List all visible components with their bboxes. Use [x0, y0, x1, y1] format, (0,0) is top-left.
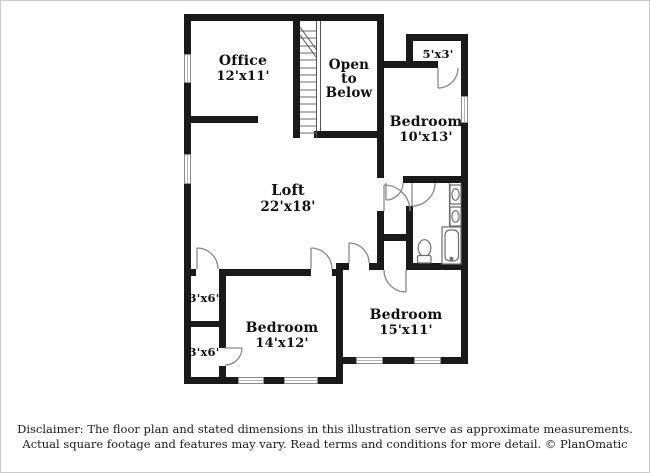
wall-bath-top	[403, 176, 468, 183]
office-dims: 12'x11'	[216, 69, 269, 84]
window-bed14-bottom-1	[239, 378, 264, 384]
closet-5x3-dims: 5'x3'	[423, 47, 454, 61]
wall-closet5x3-top	[406, 34, 468, 41]
loft-label: Loft	[271, 182, 305, 199]
stair-edge-lines	[317, 21, 321, 138]
door-bedroom14x12	[311, 248, 332, 269]
wall-openbelow-bottom	[314, 131, 384, 138]
window-bed15-bottom-2	[415, 358, 441, 364]
staircase	[300, 21, 321, 138]
door-bed15-closet	[384, 270, 406, 292]
wall-loft-bottom-e	[369, 263, 384, 270]
door-closet3x6-upper	[197, 248, 218, 269]
bedroom-14x12-dims: 14'x12'	[255, 336, 308, 351]
open-below-line3: Below	[326, 85, 373, 101]
door-bathroom	[412, 183, 435, 206]
bedroom-14x12-label: Bedroom	[246, 320, 319, 336]
bedroom-15x11-label: Bedroom	[370, 307, 443, 323]
window-bed14-bottom-2	[285, 378, 318, 384]
bedroom-10x13-label: Bedroom	[390, 114, 463, 130]
door-bedroom15x11	[349, 243, 369, 263]
office-label: Office	[219, 53, 267, 69]
bedroom-15x11-dims: 15'x11'	[379, 323, 432, 338]
wall-step	[336, 263, 343, 384]
window-bed15-bottom-1	[357, 358, 383, 364]
disclaimer: Disclaimer: The floor plan and stated di…	[1, 422, 649, 451]
wall-hall-cross	[377, 234, 413, 241]
door-closet5x3	[438, 68, 458, 88]
disclaimer-line1: Disclaimer: The floor plan and stated di…	[1, 422, 649, 437]
wall-loft-bottom-a	[184, 269, 196, 276]
wall-openbelow-right	[377, 14, 384, 178]
wall-right	[461, 34, 468, 364]
wall-loft-bottom-c	[332, 269, 343, 276]
wall-office-bottom	[184, 116, 258, 123]
disclaimer-line2: Actual square footage and features may v…	[1, 437, 649, 452]
wall-closets-vert-upper	[219, 269, 226, 348]
floorplan-drawing: Office 12'x11' Open to Below 5'x3' Bedro…	[1, 1, 650, 473]
bathtub-icon	[442, 227, 461, 264]
wall-loft-bottom-d	[343, 263, 349, 270]
wall-top	[184, 14, 384, 21]
bath-fixtures	[418, 183, 462, 264]
wall-bed15-bottom	[336, 357, 468, 364]
window-office-left	[185, 55, 191, 83]
bedroom-10x13-dims: 10'x13'	[399, 130, 452, 145]
closet-3x6-upper-dims: 3'x6'	[189, 291, 220, 305]
floorplan-image: Office 12'x11' Open to Below 5'x3' Bedro…	[0, 0, 650, 473]
loft-dims: 22'x18'	[260, 199, 315, 215]
sink-icon-2	[450, 207, 461, 226]
wall-stairs-left	[293, 14, 300, 138]
room-labels: Office 12'x11' Open to Below 5'x3' Bedro…	[189, 47, 463, 359]
window-loft-left	[185, 155, 191, 184]
wall-closets-vert-lower	[219, 366, 226, 384]
sink-icon-1	[450, 185, 461, 204]
toilet-icon	[418, 240, 432, 263]
closet-3x6-lower-dims: 3'x6'	[189, 345, 220, 359]
wall-loft-bottom-b	[219, 269, 311, 276]
door-closet3x6-lower	[225, 348, 242, 365]
